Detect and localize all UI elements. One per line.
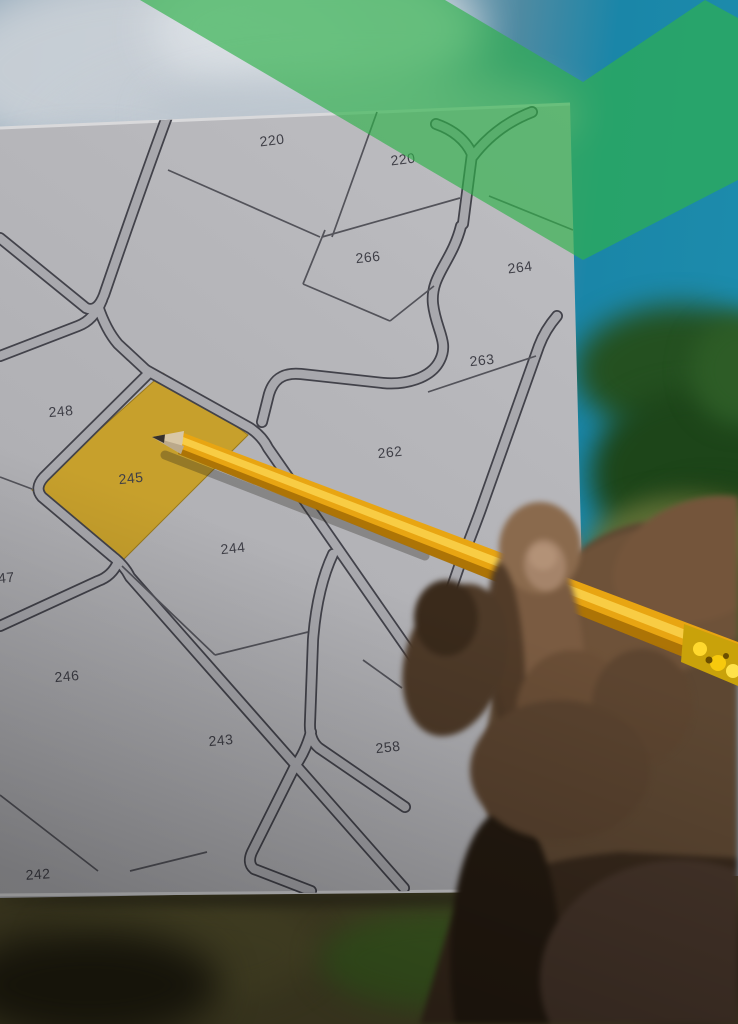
- hero-photo: 220 220 266 264 263 262 248 245 244 47 2…: [0, 0, 738, 1024]
- chevron-layer: [0, 0, 738, 1024]
- chevron-overlay-graphic: [140, 0, 738, 260]
